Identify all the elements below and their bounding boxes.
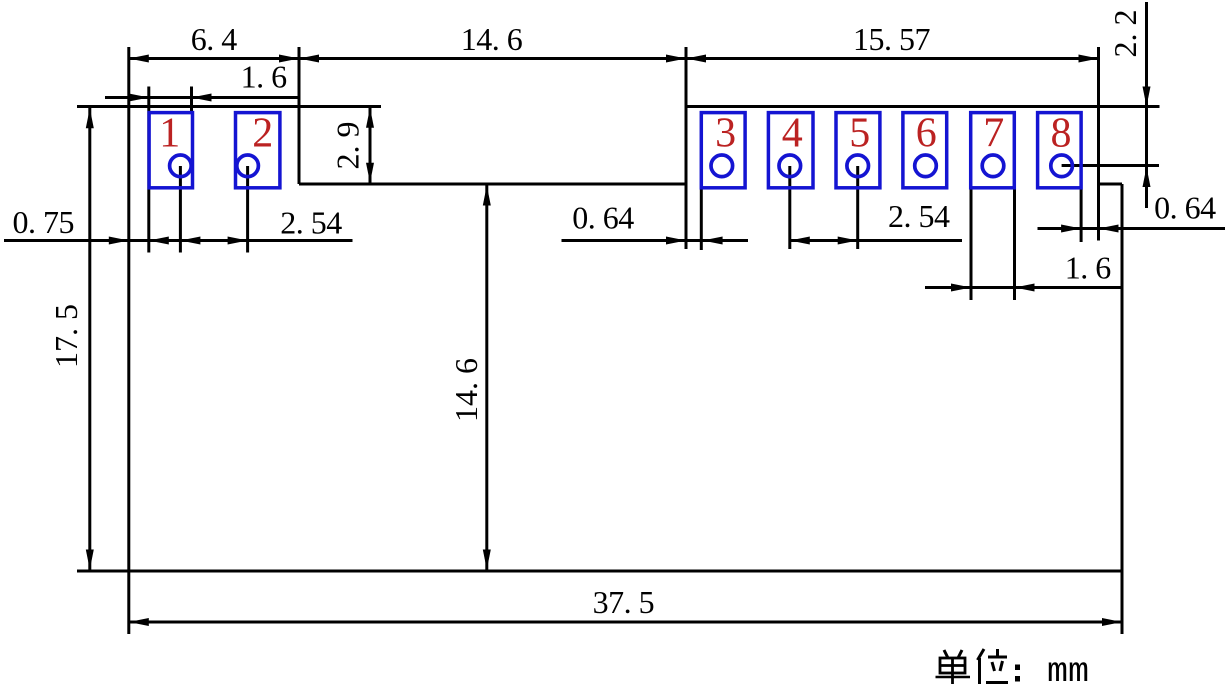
svg-text:0. 75: 0. 75: [13, 204, 75, 240]
svg-text:1. 6: 1. 6: [1065, 250, 1112, 286]
svg-text:mm: mm: [1047, 652, 1089, 692]
svg-text:2. 54: 2. 54: [888, 198, 950, 234]
svg-text:2. 2: 2. 2: [1107, 10, 1143, 58]
svg-text:5: 5: [849, 110, 870, 156]
svg-text:37. 5: 37. 5: [593, 584, 655, 620]
svg-text:1: 1: [159, 110, 180, 156]
svg-text:6: 6: [916, 110, 937, 156]
svg-text:8: 8: [1051, 110, 1072, 156]
svg-text:2. 9: 2. 9: [329, 122, 365, 170]
svg-text:2. 54: 2. 54: [280, 205, 342, 241]
svg-text:6. 4: 6. 4: [191, 21, 238, 57]
svg-text:0. 64: 0. 64: [572, 200, 634, 236]
svg-text:3: 3: [715, 110, 736, 156]
svg-text:4: 4: [782, 110, 803, 156]
svg-text:1. 6: 1. 6: [241, 59, 288, 95]
svg-text:17. 5: 17. 5: [48, 304, 84, 368]
svg-text:14. 6: 14. 6: [461, 21, 523, 57]
svg-text:2: 2: [252, 110, 273, 156]
svg-text:0. 64: 0. 64: [1154, 190, 1216, 226]
svg-text:14. 6: 14. 6: [448, 358, 484, 422]
svg-text:15. 57: 15. 57: [853, 21, 931, 57]
svg-text:7: 7: [983, 110, 1004, 156]
